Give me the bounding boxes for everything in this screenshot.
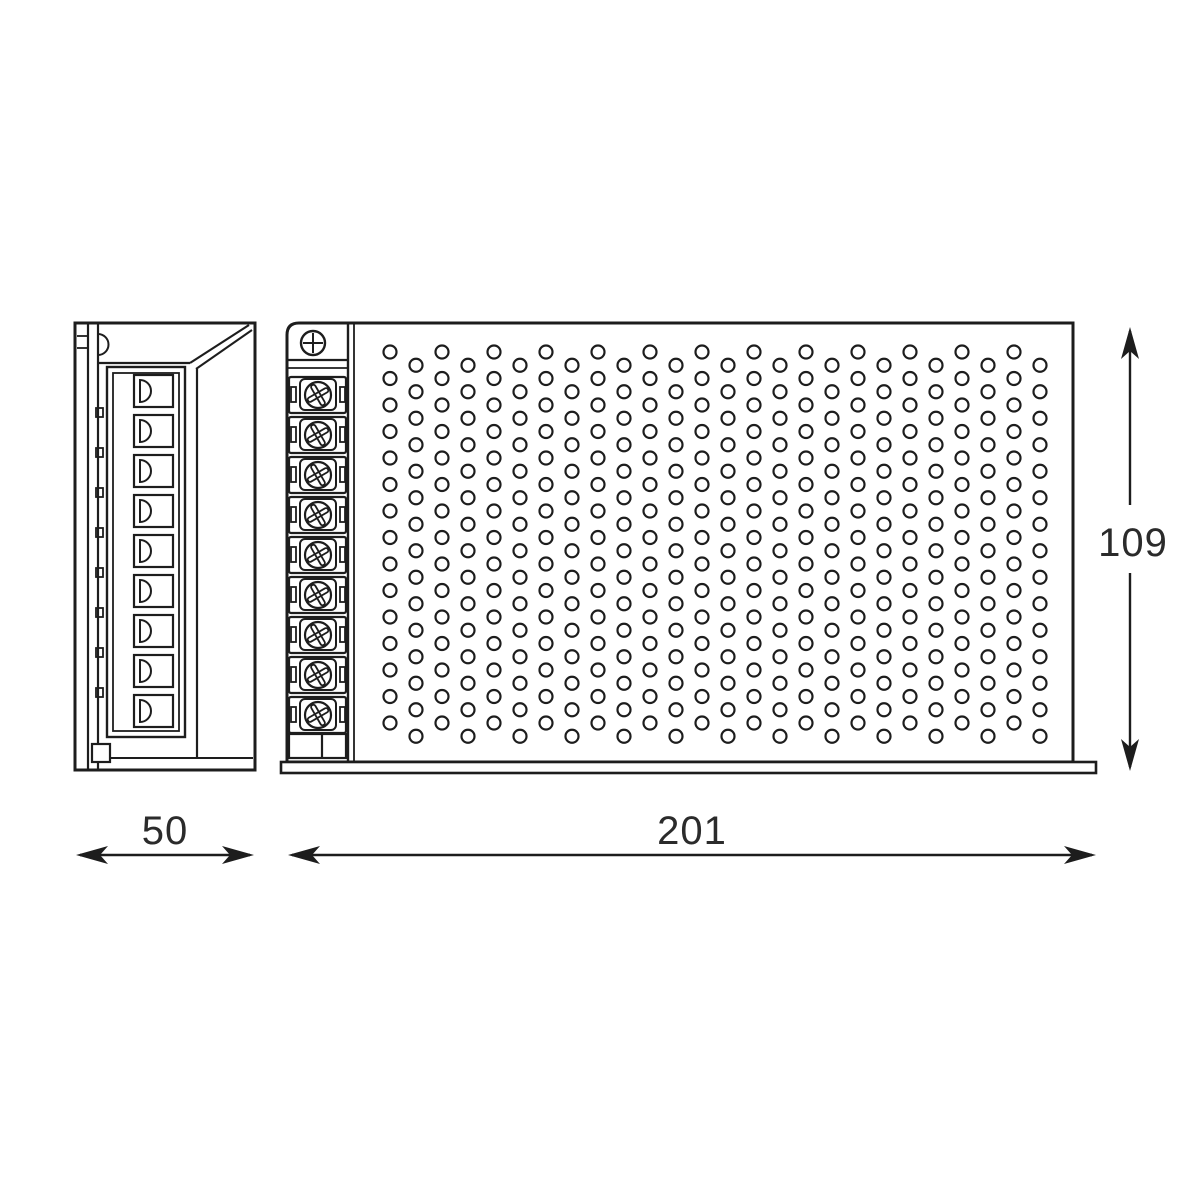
perforation-hole [540,664,553,677]
perforation-hole [644,372,657,385]
perforation-hole [1034,730,1047,743]
perforation-hole [488,531,501,544]
perforation-hole [852,399,865,412]
perforation-hole [982,703,995,716]
perforation-hole [1008,531,1021,544]
perforation-hole [644,505,657,518]
perforation-hole [956,346,969,359]
terminal-tab-left [291,627,296,642]
perforation-hole [878,730,891,743]
cross-screw-icon [302,459,333,490]
perforation-hole [410,438,423,451]
perforation-hole [696,611,709,624]
perforation-hole [982,359,995,372]
terminal-screw [305,702,331,728]
perforation-hole [800,505,813,518]
perforation-hole [1008,637,1021,650]
perforation-hole [436,531,449,544]
perforation-hole [670,624,683,637]
perforation-hole [852,717,865,730]
perforation-hole [1034,597,1047,610]
perforation-hole [748,584,761,597]
perforation-hole [514,650,527,663]
perforation-hole [514,571,527,584]
perforation-hole [488,346,501,359]
perforation-hole [1008,478,1021,491]
perforation-hole [878,597,891,610]
terminal-tab-left [291,387,296,402]
perforation-hole [878,518,891,531]
perforation-hole [748,372,761,385]
perforation-hole [826,518,839,531]
terminal-cell [289,417,346,453]
perforation-hole [384,399,397,412]
perforation-hole [904,690,917,703]
perforation-hole [956,452,969,465]
perforation-hole [826,571,839,584]
perforation-hole [774,624,787,637]
terminal-screw [305,582,331,608]
perforation-hole [956,372,969,385]
cross-screw-icon [302,659,333,690]
perforation-hole [384,346,397,359]
perforation-hole [462,465,475,478]
perforation-hole [540,611,553,624]
perforation-hole [644,478,657,491]
perforation-hole [488,611,501,624]
perforation-hole [540,690,553,703]
perforation-hole [514,677,527,690]
perforation-hole [826,491,839,504]
terminal-cell [289,497,346,533]
perforation-hole [1034,385,1047,398]
perforation-hole [774,597,787,610]
perforation-hole [618,730,631,743]
perforation-hole [592,637,605,650]
perforation-hole [462,385,475,398]
perforation-hole [904,425,917,438]
perforation-hole [488,399,501,412]
perforation-hole [384,372,397,385]
perforation-hole [670,597,683,610]
perforation-hole [774,518,787,531]
perforation-hole [826,465,839,478]
perforation-hole [722,703,735,716]
perforation-hole [696,637,709,650]
perforation-hole [566,385,579,398]
perforation-hole [670,677,683,690]
perforation-hole [696,584,709,597]
terminal-screw [305,462,331,488]
perforation-hole [748,690,761,703]
bottom-cell-outline [289,734,346,758]
perforation-hole [540,478,553,491]
perforation-hole [696,346,709,359]
perforation-hole [462,412,475,425]
terminal-tab-right [340,427,345,442]
perforation-hole [514,624,527,637]
cross-screw-icon [302,699,333,730]
perforation-hole [1034,465,1047,478]
perforation-hole [436,637,449,650]
perforation-hole [982,518,995,531]
perforation-hole [748,558,761,571]
perforation-hole [748,425,761,438]
perforation-hole [722,624,735,637]
perforation-hole [488,690,501,703]
perforation-hole [566,465,579,478]
perforation-hole [410,730,423,743]
perforation-hole [618,544,631,557]
terminal-tab-left [291,427,296,442]
perforation-hole [436,505,449,518]
perforation-hole [1034,677,1047,690]
perforation-hole [410,703,423,716]
perforation-hole [566,518,579,531]
perforation-hole [878,385,891,398]
perforation-hole [774,571,787,584]
perforation-hole [618,359,631,372]
front-view [281,323,1096,773]
perforation-hole [748,637,761,650]
perforation-hole [696,399,709,412]
cross-screw-icon [302,419,333,450]
perforation-grid [384,346,1047,743]
perforation-hole [514,465,527,478]
perforation-hole [1034,491,1047,504]
perforation-hole [540,531,553,544]
perforation-hole [1034,438,1047,451]
perforation-hole [852,558,865,571]
perforation-hole [774,491,787,504]
perforation-hole [436,690,449,703]
perforation-hole [618,465,631,478]
perforation-hole [826,624,839,637]
perforation-hole [722,491,735,504]
perforation-hole [878,438,891,451]
perforation-hole [436,452,449,465]
perforation-hole [488,372,501,385]
perforation-hole [774,385,787,398]
terminal-tab-right [340,507,345,522]
perforation-hole [930,730,943,743]
perforation-hole [670,385,683,398]
perforation-hole [384,478,397,491]
perforation-hole [904,531,917,544]
perforation-hole [774,703,787,716]
perforation-hole [384,611,397,624]
perforation-hole [774,544,787,557]
perforation-hole [826,412,839,425]
perforation-hole [852,584,865,597]
perforation-hole [436,717,449,730]
perforation-hole [592,346,605,359]
perforation-hole [436,425,449,438]
perforation-hole [826,544,839,557]
perforation-hole [592,425,605,438]
perforation-hole [384,717,397,730]
perforation-hole [800,558,813,571]
perforation-hole [618,650,631,663]
perforation-hole [1034,412,1047,425]
perforation-hole [982,412,995,425]
perforation-hole [670,491,683,504]
perforation-hole [618,571,631,584]
perforation-hole [904,346,917,359]
perforation-hole [852,452,865,465]
perforation-hole [1034,544,1047,557]
perforation-hole [826,438,839,451]
perforation-hole [852,690,865,703]
perforation-hole [982,491,995,504]
perforation-hole [462,597,475,610]
perforation-hole [514,438,527,451]
perforation-hole [618,597,631,610]
perforation-hole [748,611,761,624]
perforation-hole [514,412,527,425]
perforation-hole [852,611,865,624]
perforation-hole [800,452,813,465]
perforation-hole [930,703,943,716]
perforation-hole [800,611,813,624]
perforation-hole [852,346,865,359]
perforation-hole [1008,505,1021,518]
perforation-hole [800,372,813,385]
perforation-hole [982,571,995,584]
terminal-tab-right [340,587,345,602]
perforation-hole [826,703,839,716]
perforation-hole [592,399,605,412]
perforation-hole [956,558,969,571]
perforation-hole [410,677,423,690]
perforation-hole [644,584,657,597]
perforation-hole [930,385,943,398]
terminal-cell [289,617,346,653]
perforation-hole [618,624,631,637]
perforation-hole [878,544,891,557]
perforation-hole [852,505,865,518]
perforation-hole [670,438,683,451]
perforation-hole [488,664,501,677]
perforation-hole [982,624,995,637]
perforation-hole [488,584,501,597]
cross-screw-icon [302,379,333,410]
perforation-hole [930,518,943,531]
perforation-hole [930,359,943,372]
perforation-hole [514,518,527,531]
perforation-hole [722,359,735,372]
perforation-hole [774,465,787,478]
perforation-hole [1008,399,1021,412]
perforation-hole [618,703,631,716]
perforation-hole [904,637,917,650]
side-view [75,323,255,770]
perforation-hole [384,664,397,677]
perforation-hole [956,717,969,730]
perforation-hole [592,690,605,703]
perforation-hole [618,412,631,425]
perforation-hole [800,399,813,412]
dimension-width: 201 [288,809,1096,864]
perforation-hole [878,571,891,584]
perforation-hole [982,438,995,451]
perforation-hole [384,425,397,438]
perforation-hole [982,597,995,610]
perforation-hole [670,412,683,425]
perforation-hole [566,677,579,690]
perforation-hole [800,664,813,677]
perforation-hole [436,372,449,385]
perforation-hole [800,478,813,491]
perforation-hole [930,412,943,425]
perforation-hole [644,452,657,465]
terminal-tab-right [340,707,345,722]
perforation-hole [696,558,709,571]
perforation-hole [696,478,709,491]
perforation-hole [540,717,553,730]
perforation-hole [930,597,943,610]
perforation-hole [1008,372,1021,385]
perforation-hole [826,650,839,663]
perforation-hole [852,478,865,491]
perforation-hole [644,690,657,703]
perforation-hole [618,438,631,451]
perforation-hole [1034,518,1047,531]
perforation-hole [514,359,527,372]
perforation-hole [1008,452,1021,465]
perforation-hole [462,491,475,504]
terminal-cell [289,537,346,573]
perforation-hole [410,597,423,610]
terminal-tab-left [291,467,296,482]
perforation-hole [956,531,969,544]
perforation-hole [748,505,761,518]
perforation-hole [592,452,605,465]
perforation-hole [956,505,969,518]
perforation-hole [670,571,683,584]
terminal-cell [289,457,346,493]
perforation-hole [514,730,527,743]
perforation-hole [774,677,787,690]
perforation-hole [462,544,475,557]
perforation-hole [696,717,709,730]
perforation-hole [462,359,475,372]
terminal-cell [289,577,346,613]
perforation-hole [800,584,813,597]
terminal-screw [305,422,331,448]
perforation-hole [1008,690,1021,703]
perforation-hole [410,624,423,637]
side-screw-bump [98,334,109,355]
perforation-hole [514,597,527,610]
perforation-hole [956,399,969,412]
perforation-hole [592,558,605,571]
perforation-hole [956,690,969,703]
perforation-hole [826,359,839,372]
perforation-hole [462,677,475,690]
perforation-hole [488,452,501,465]
side-top-bevel-outer [190,325,249,363]
perforation-hole [540,425,553,438]
perforation-hole [670,650,683,663]
perforation-hole [670,518,683,531]
perforation-hole [462,650,475,663]
perforation-hole [878,703,891,716]
perforation-hole [904,399,917,412]
perforation-hole [462,703,475,716]
perforation-hole [904,611,917,624]
perforation-hole [930,438,943,451]
terminal-tab-left [291,667,296,682]
perforation-hole [514,703,527,716]
perforation-hole [566,438,579,451]
perforation-hole [930,491,943,504]
perforation-hole [436,584,449,597]
perforation-hole [384,690,397,703]
perforation-hole [1034,359,1047,372]
perforation-hole [592,531,605,544]
perforation-hole [540,584,553,597]
perforation-hole [878,412,891,425]
perforation-hole [514,544,527,557]
perforation-hole [878,677,891,690]
height-dimension-label: 109 [1098,521,1168,565]
perforation-hole [462,730,475,743]
perforation-hole [540,505,553,518]
perforation-hole [592,372,605,385]
perforation-hole [436,664,449,677]
perforation-hole [592,584,605,597]
perforation-hole [436,558,449,571]
perforation-hole [410,650,423,663]
perforation-hole [644,399,657,412]
perforation-hole [670,359,683,372]
perforation-hole [748,399,761,412]
perforation-hole [488,558,501,571]
perforation-hole [696,664,709,677]
side-bottom-latch [92,744,110,762]
perforation-hole [592,664,605,677]
perforation-hole [410,385,423,398]
perforation-hole [930,677,943,690]
perforation-hole [384,452,397,465]
terminal-tab-right [340,627,345,642]
perforation-hole [852,637,865,650]
technical-drawing: 50 201 109 [0,0,1200,1200]
perforation-hole [644,664,657,677]
side-terminal-block [96,367,185,737]
perforation-hole [956,611,969,624]
perforation-hole [748,664,761,677]
perforation-hole [878,491,891,504]
perforation-hole [982,385,995,398]
depth-dimension-label: 50 [142,809,189,853]
dimension-height: 109 [1098,327,1168,771]
terminal-tab-left [291,587,296,602]
perforation-hole [722,571,735,584]
cross-screw-icon [302,499,333,530]
terminal-tab-right [340,387,345,402]
perforation-hole [540,558,553,571]
perforation-hole [566,412,579,425]
perforation-hole [696,372,709,385]
perforation-hole [982,650,995,663]
terminal-screw [305,542,331,568]
perforation-hole [592,505,605,518]
strip-bottom-cell [289,734,346,758]
perforation-hole [618,677,631,690]
perforation-hole [1008,611,1021,624]
